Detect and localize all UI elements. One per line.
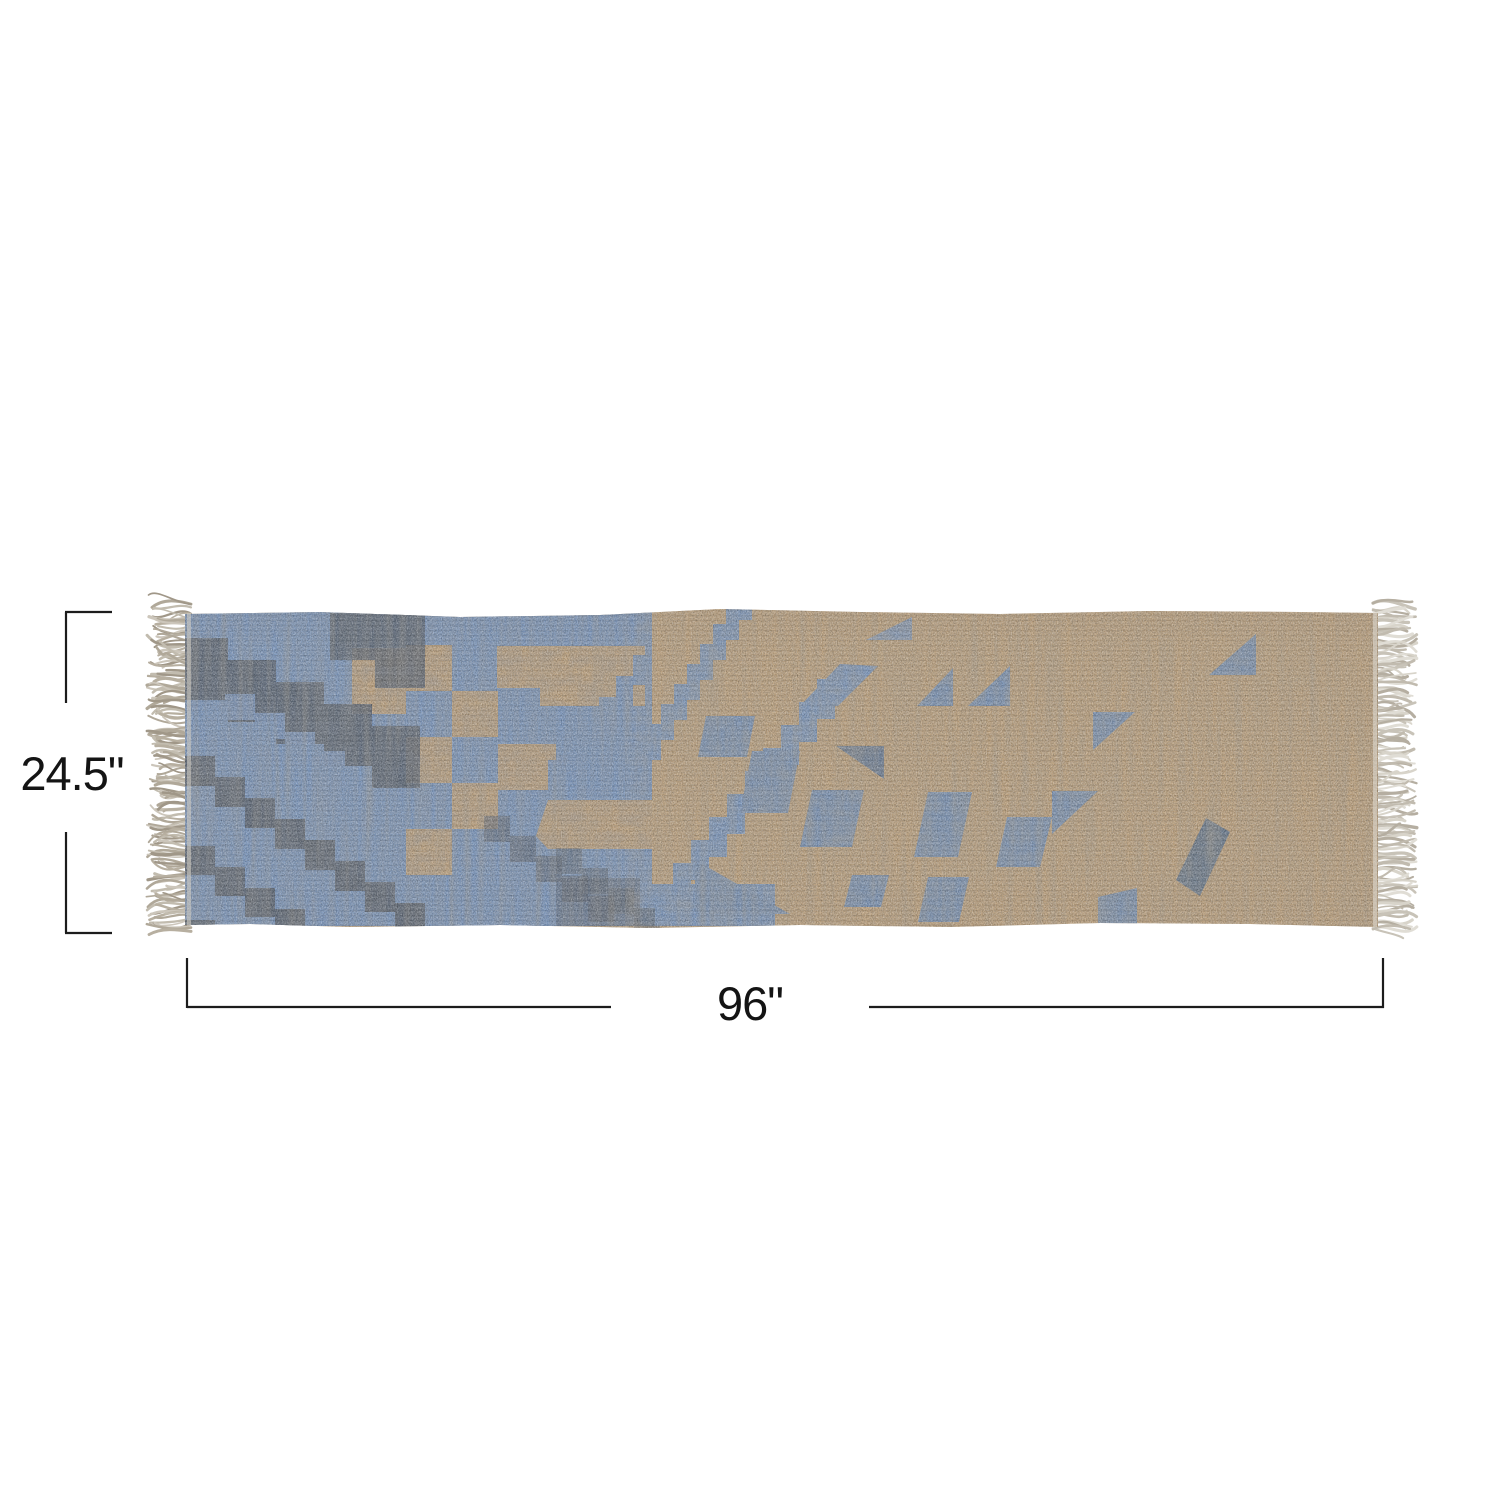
svg-text:24.5": 24.5" (20, 747, 123, 800)
svg-text:96": 96" (717, 977, 783, 1030)
